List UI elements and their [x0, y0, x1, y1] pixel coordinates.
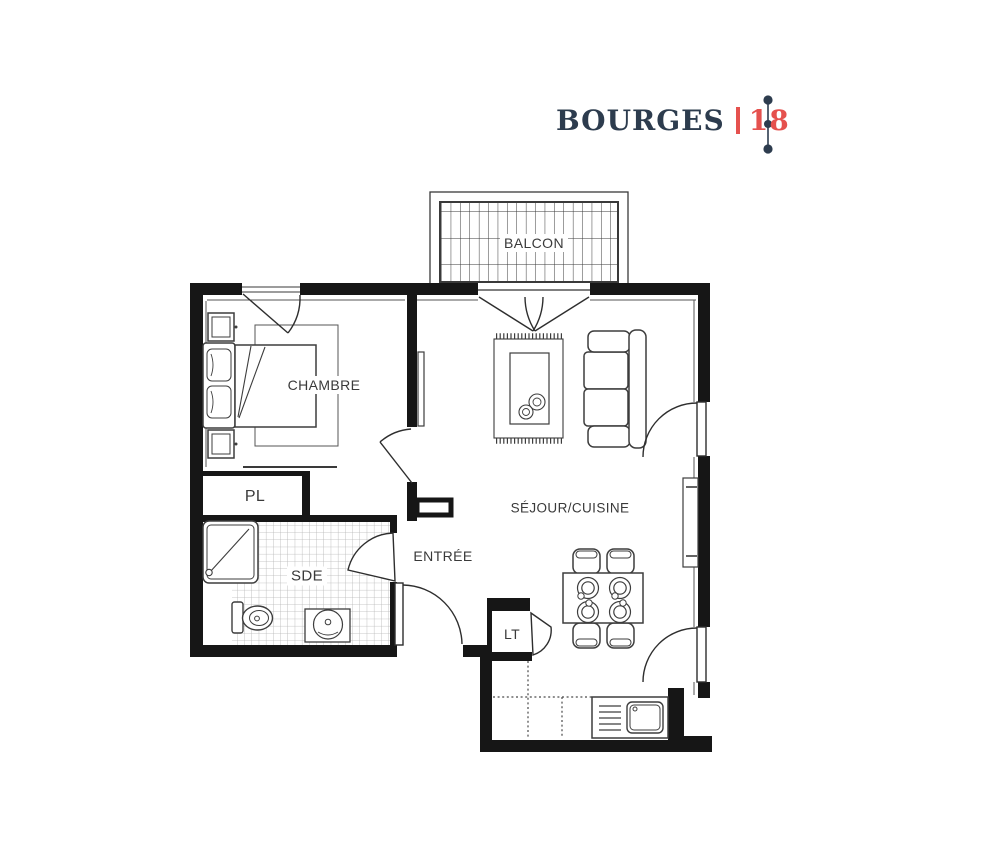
room-label-closet: PL: [241, 487, 269, 507]
bedroom-window: [242, 287, 300, 292]
living-room-door-swing: [643, 402, 706, 457]
radiator: [683, 478, 698, 567]
room-label-shower-room: SDE: [287, 567, 327, 586]
nightstand: [208, 313, 238, 341]
entrance-door-swing: [395, 583, 462, 645]
plan-title: BOURGES 18: [556, 104, 790, 137]
sofa: [584, 330, 646, 448]
partition-stub: [417, 500, 451, 515]
room-label-bedroom: CHAMBRE: [284, 376, 365, 394]
floor-plan-drawing: [0, 0, 1000, 857]
coffee-table: [510, 353, 549, 424]
title-divider: [736, 107, 740, 134]
bedroom-door-swing: [380, 429, 412, 483]
kitchen-sink: [592, 697, 668, 738]
room-label-balcony: BALCON: [500, 234, 568, 252]
plan-title-number: 18: [749, 104, 790, 137]
balcony-door-swing: [479, 297, 589, 331]
room-label-living-kitchen: SÉJOUR/CUISINE: [507, 500, 634, 517]
living-room-door-swing: [643, 627, 706, 682]
laundry-door-swing: [531, 613, 551, 655]
washbasin: [305, 609, 350, 642]
floor-plan-page: BOURGES 18 BALCON CHAMBRE SÉJOUR/CUISINE…: [0, 0, 1000, 857]
nightstand: [208, 430, 238, 458]
dining-table: [563, 573, 643, 623]
room-label-entrance: ENTRÉE: [409, 547, 476, 565]
tv: [418, 352, 424, 426]
room-label-laundry: LT: [500, 625, 524, 643]
shower: [203, 521, 258, 583]
kitchen-counter: [493, 661, 592, 737]
plan-title-city: BOURGES: [556, 104, 725, 137]
